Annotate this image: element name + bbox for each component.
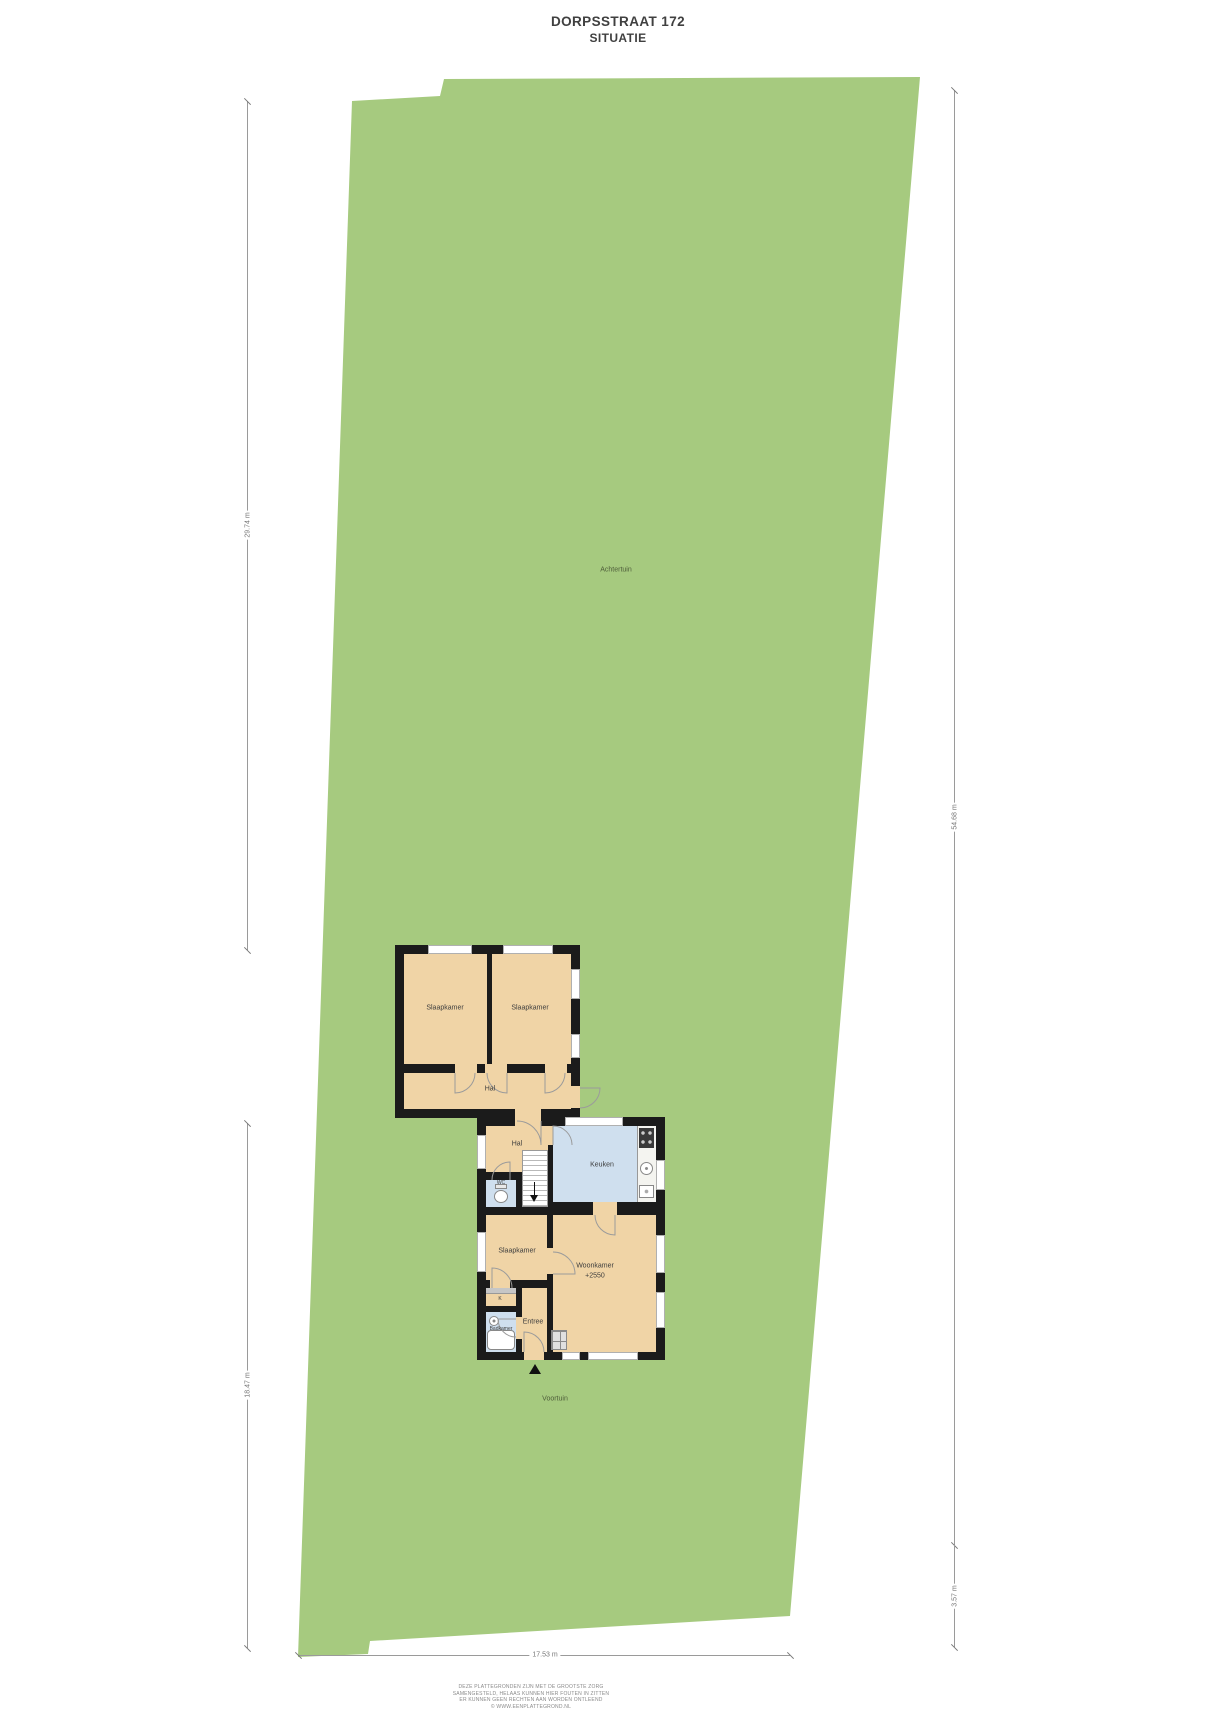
disclaimer-line: DEZE PLATTEGRONDEN ZIJN MET DE GROOTSTE … <box>453 1684 610 1691</box>
window <box>428 945 472 954</box>
door-opening <box>485 1064 507 1073</box>
drawing-title-block: DORPSSTRAAT 172 SITUATIE <box>551 14 685 45</box>
door-opening <box>593 1202 617 1215</box>
dimension-label-left-bottom: 18.47 m <box>245 1370 252 1399</box>
room-label-hall-lower: Hal <box>512 1141 523 1148</box>
door-opening <box>545 1064 567 1073</box>
stairs-arrow-stem <box>534 1182 535 1195</box>
window <box>565 1117 623 1126</box>
dimension-label-right-top: 54.68 m <box>952 802 959 831</box>
window <box>503 945 553 954</box>
door-opening <box>547 1248 553 1274</box>
back-garden-label: Achtertuin <box>600 567 632 574</box>
garden-plot-shape <box>298 77 920 1657</box>
bathtub-icon <box>487 1330 515 1350</box>
window <box>656 1292 665 1328</box>
dimension-label-bottom: 17.53 m <box>529 1652 560 1659</box>
entrance-arrow-icon <box>529 1364 541 1374</box>
front-door-opening <box>524 1352 544 1360</box>
kitchen-sink-icon <box>640 1162 653 1175</box>
wall <box>486 1172 516 1180</box>
disclaimer-line: © WWW.EENPLATTEGROND.NL <box>453 1704 610 1711</box>
room-label-bedroom-upper-left: Slaapkamer <box>426 1005 463 1012</box>
closet-shelf <box>486 1288 516 1294</box>
room-label-bedroom-lower: Slaapkamer <box>498 1248 535 1255</box>
window <box>656 1235 665 1273</box>
room-living <box>553 1215 656 1352</box>
window <box>562 1352 580 1360</box>
window <box>571 1034 580 1058</box>
door-opening <box>490 1280 510 1288</box>
window <box>477 1135 486 1169</box>
door-opening <box>516 1317 522 1339</box>
room-label-kitchen: Keuken <box>590 1162 614 1169</box>
window <box>588 1352 638 1360</box>
dimension-label-right-bottom: 3.57 m <box>952 1583 959 1608</box>
bathroom-sink-icon <box>489 1316 499 1326</box>
page-subtitle: SITUATIE <box>551 31 685 45</box>
page-title: DORPSSTRAAT 172 <box>551 14 685 29</box>
stairs-down-arrow-icon <box>530 1195 538 1202</box>
room-label-wc: WC <box>497 1180 505 1186</box>
room-label-bathroom: Badkamer <box>490 1326 513 1332</box>
room-label-living: Woonkamer <box>576 1263 614 1270</box>
window <box>656 1160 665 1190</box>
room-label-bedroom-upper-right: Slaapkamer <box>511 1005 548 1012</box>
toilet-bowl-icon <box>494 1190 508 1203</box>
plot-outline-layer <box>0 0 1222 1728</box>
window <box>571 969 580 999</box>
dimension-label-left-top: 29.74 m <box>245 510 252 539</box>
door-opening <box>548 1126 553 1145</box>
room-label-entry: Entree <box>523 1319 544 1326</box>
meter-cabinet-icon <box>551 1330 567 1350</box>
room-label-living-level: +2550 <box>585 1273 605 1280</box>
door-opening <box>455 1064 477 1073</box>
disclaimer-text: DEZE PLATTEGRONDEN ZIJN MET DE GROOTSTE … <box>453 1684 610 1710</box>
situation-plan-canvas: DORPSSTRAAT 172 SITUATIE Achtertuin Voor… <box>0 0 1222 1728</box>
garden-door-opening <box>571 1086 580 1108</box>
room-label-hall-upper: Hal <box>485 1086 496 1093</box>
stove-icon <box>639 1128 654 1148</box>
disclaimer-line: ER KUNNEN GEEN RECHTEN AAN WORDEN ONTLEE… <box>453 1697 610 1704</box>
front-garden-label: Voortuin <box>542 1396 568 1403</box>
appliance-icon <box>639 1185 654 1198</box>
door-opening <box>515 1117 541 1126</box>
window <box>477 1232 486 1272</box>
room-label-closet: K <box>498 1296 501 1302</box>
